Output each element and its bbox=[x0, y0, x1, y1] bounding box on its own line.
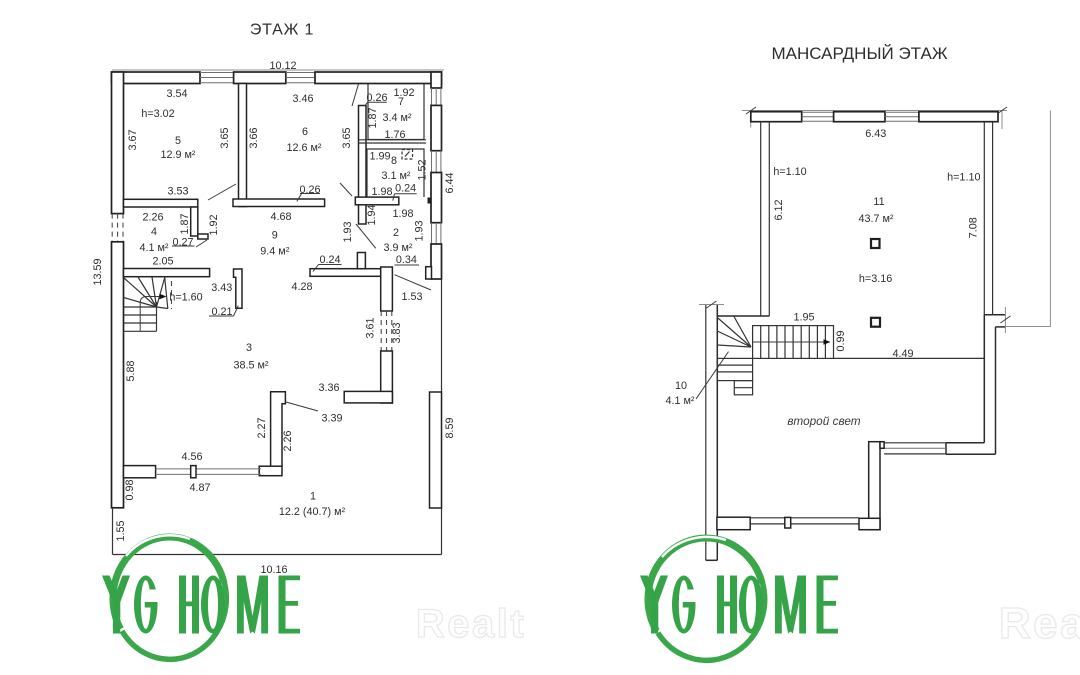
svg-text:1.55: 1.55 bbox=[115, 520, 127, 541]
svg-text:3.1 м²: 3.1 м² bbox=[381, 170, 410, 182]
svg-text:h=3.02: h=3.02 bbox=[141, 108, 174, 120]
svg-text:1.99: 1.99 bbox=[369, 151, 390, 163]
svg-text:1.95: 1.95 bbox=[793, 312, 814, 324]
svg-text:1.94: 1.94 bbox=[366, 204, 378, 225]
svg-text:h=1.10: h=1.10 bbox=[773, 166, 806, 178]
svg-text:4.68: 4.68 bbox=[270, 211, 291, 223]
svg-text:ЭТАЖ 1: ЭТАЖ 1 bbox=[250, 22, 314, 39]
svg-text:0.34: 0.34 bbox=[396, 254, 417, 266]
svg-text:6: 6 bbox=[302, 126, 308, 138]
svg-text:2.26: 2.26 bbox=[282, 430, 294, 451]
svg-text:3.65: 3.65 bbox=[341, 127, 353, 148]
svg-text:2: 2 bbox=[393, 227, 399, 239]
svg-text:Rea: Rea bbox=[999, 599, 1080, 648]
svg-text:0.26: 0.26 bbox=[299, 184, 320, 196]
svg-text:43.7 м²: 43.7 м² bbox=[858, 213, 893, 225]
svg-text:3.53: 3.53 bbox=[167, 186, 188, 198]
svg-text:9.4 м²: 9.4 м² bbox=[260, 246, 289, 258]
svg-text:10: 10 bbox=[675, 380, 687, 392]
svg-text:h=1.10: h=1.10 bbox=[947, 172, 980, 184]
svg-text:4.56: 4.56 bbox=[181, 451, 202, 463]
svg-text:3.66: 3.66 bbox=[248, 127, 260, 148]
svg-text:12.6 м²: 12.6 м² bbox=[286, 142, 321, 154]
svg-text:3: 3 bbox=[246, 342, 252, 354]
svg-text:4: 4 bbox=[151, 226, 157, 238]
svg-text:0.98: 0.98 bbox=[124, 479, 136, 500]
svg-text:0.24: 0.24 bbox=[395, 183, 416, 195]
svg-text:8.59: 8.59 bbox=[444, 417, 456, 438]
svg-text:10.16: 10.16 bbox=[260, 564, 287, 576]
svg-text:0.24: 0.24 bbox=[319, 254, 340, 266]
svg-text:11: 11 bbox=[873, 196, 884, 208]
svg-text:9: 9 bbox=[272, 230, 278, 242]
svg-text:3.36: 3.36 bbox=[318, 382, 339, 394]
svg-text:1.87: 1.87 bbox=[367, 107, 379, 128]
svg-text:3.43: 3.43 bbox=[211, 282, 232, 294]
svg-text:0.26: 0.26 bbox=[366, 92, 387, 104]
svg-text:6.44: 6.44 bbox=[444, 172, 456, 193]
svg-text:1.76: 1.76 bbox=[384, 129, 405, 141]
svg-text:8: 8 bbox=[391, 155, 397, 167]
svg-text:3.83: 3.83 bbox=[391, 322, 403, 343]
svg-text:7.08: 7.08 bbox=[968, 217, 980, 238]
svg-text:h=1.60: h=1.60 bbox=[169, 292, 202, 304]
svg-text:4.1 м²: 4.1 м² bbox=[665, 395, 694, 407]
svg-text:0.27: 0.27 bbox=[172, 237, 193, 249]
svg-text:Realt: Realt bbox=[416, 602, 526, 646]
svg-text:1.92: 1.92 bbox=[208, 214, 220, 235]
svg-text:3.46: 3.46 bbox=[292, 93, 313, 105]
svg-text:2.27: 2.27 bbox=[256, 417, 268, 438]
svg-text:3.54: 3.54 bbox=[166, 88, 187, 100]
svg-text:МАНСАРДНЫЙ ЭТАЖ: МАНСАРДНЫЙ ЭТАЖ bbox=[771, 44, 947, 63]
svg-text:3.9 м²: 3.9 м² bbox=[383, 242, 412, 254]
svg-text:1.52: 1.52 bbox=[417, 159, 429, 180]
svg-text:1.87: 1.87 bbox=[179, 213, 191, 234]
svg-text:1: 1 bbox=[310, 491, 316, 503]
svg-text:4.87: 4.87 bbox=[189, 482, 210, 494]
svg-text:3.4 м²: 3.4 м² bbox=[382, 112, 411, 124]
svg-text:0.99: 0.99 bbox=[835, 330, 847, 351]
svg-text:второй свет: второй свет bbox=[787, 414, 860, 428]
svg-text:1.53: 1.53 bbox=[401, 291, 422, 303]
svg-text:5: 5 bbox=[175, 135, 181, 147]
svg-text:3.39: 3.39 bbox=[321, 413, 342, 425]
svg-text:6.12: 6.12 bbox=[773, 199, 785, 220]
svg-text:2.05: 2.05 bbox=[152, 256, 173, 268]
svg-text:12.2 (40.7) м²: 12.2 (40.7) м² bbox=[279, 506, 346, 518]
svg-text:1.98: 1.98 bbox=[371, 186, 392, 198]
svg-text:3.67: 3.67 bbox=[127, 129, 139, 150]
svg-text:3.65: 3.65 bbox=[219, 127, 231, 148]
svg-text:2.26: 2.26 bbox=[142, 212, 163, 224]
svg-text:7: 7 bbox=[398, 96, 404, 108]
svg-text:0.21: 0.21 bbox=[211, 306, 232, 318]
svg-text:6.43: 6.43 bbox=[865, 128, 886, 140]
svg-text:13.59: 13.59 bbox=[92, 258, 104, 285]
svg-text:4.28: 4.28 bbox=[291, 281, 312, 293]
svg-text:12.9 м²: 12.9 м² bbox=[160, 149, 195, 161]
svg-text:h=3.16: h=3.16 bbox=[859, 273, 892, 285]
svg-text:38.5 м²: 38.5 м² bbox=[233, 360, 268, 372]
svg-text:1.98: 1.98 bbox=[392, 208, 413, 220]
svg-text:4.49: 4.49 bbox=[892, 348, 913, 360]
svg-text:1.93: 1.93 bbox=[342, 221, 354, 242]
svg-text:3.61: 3.61 bbox=[365, 317, 377, 338]
svg-text:1.93: 1.93 bbox=[414, 220, 426, 241]
svg-text:4.1 м²: 4.1 м² bbox=[139, 242, 168, 254]
svg-text:5.88: 5.88 bbox=[125, 360, 137, 381]
